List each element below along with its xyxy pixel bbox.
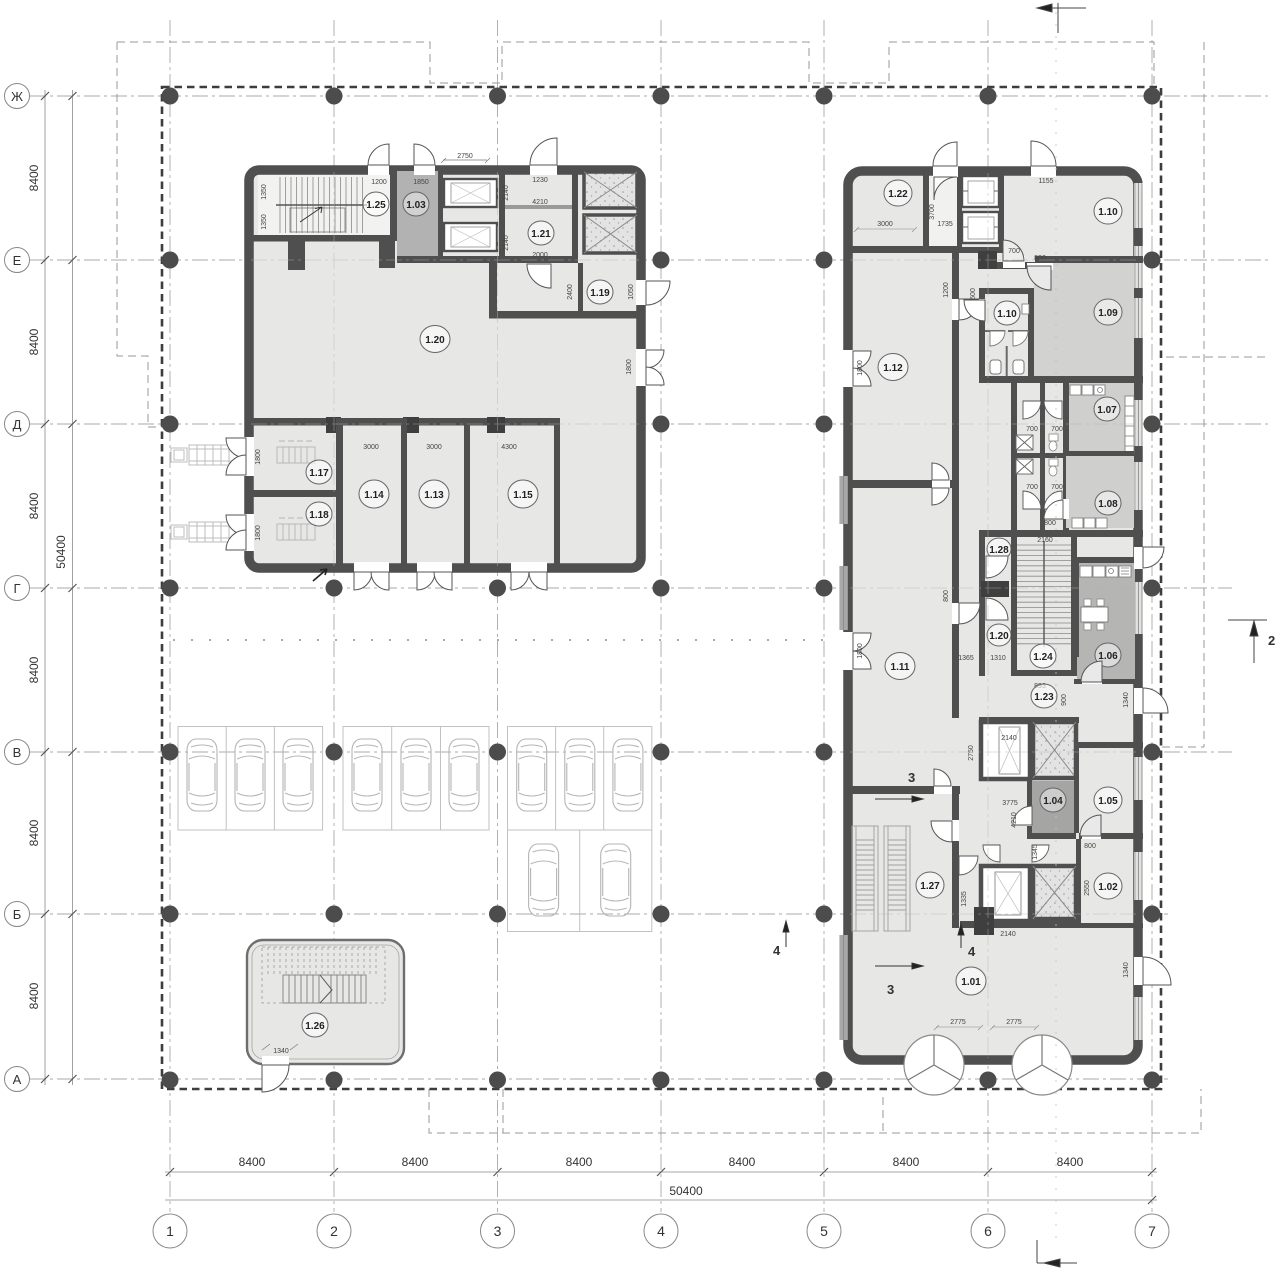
svg-text:8400: 8400 xyxy=(239,1155,266,1169)
svg-text:4: 4 xyxy=(657,1223,665,1239)
svg-text:800: 800 xyxy=(1034,255,1046,262)
svg-text:1.22: 1.22 xyxy=(888,189,908,200)
svg-text:Г: Г xyxy=(13,581,20,596)
svg-text:8400: 8400 xyxy=(27,982,41,1009)
svg-text:8400: 8400 xyxy=(566,1155,593,1169)
svg-text:6: 6 xyxy=(984,1223,992,1239)
svg-text:8400: 8400 xyxy=(27,819,41,846)
svg-text:Ж: Ж xyxy=(11,89,23,104)
svg-text:1200: 1200 xyxy=(943,282,950,298)
svg-text:1350: 1350 xyxy=(261,184,268,200)
svg-text:3000: 3000 xyxy=(363,444,379,451)
svg-text:1.20: 1.20 xyxy=(989,631,1009,642)
svg-text:700: 700 xyxy=(1051,484,1063,491)
svg-text:4210: 4210 xyxy=(532,199,548,206)
svg-text:2750: 2750 xyxy=(968,745,975,761)
svg-text:1.04: 1.04 xyxy=(1043,796,1063,807)
svg-text:2400: 2400 xyxy=(567,284,574,300)
svg-text:2140: 2140 xyxy=(503,235,510,251)
svg-text:2: 2 xyxy=(330,1223,338,1239)
svg-text:1.10: 1.10 xyxy=(997,309,1017,320)
svg-text:1.28: 1.28 xyxy=(989,545,1009,556)
svg-text:1.11: 1.11 xyxy=(891,662,910,673)
svg-text:1.14: 1.14 xyxy=(364,490,384,501)
svg-text:В: В xyxy=(13,745,22,760)
svg-text:1310: 1310 xyxy=(990,655,1006,662)
svg-text:8400: 8400 xyxy=(27,164,41,191)
svg-text:8400: 8400 xyxy=(27,328,41,355)
svg-text:1.06: 1.06 xyxy=(1098,651,1118,662)
svg-text:1.03: 1.03 xyxy=(406,200,426,211)
svg-text:1350: 1350 xyxy=(261,214,268,230)
svg-text:1.18: 1.18 xyxy=(309,510,329,521)
svg-text:2140: 2140 xyxy=(1001,735,1017,742)
svg-text:1345: 1345 xyxy=(1032,844,1039,860)
svg-text:50400: 50400 xyxy=(54,535,68,569)
svg-text:700: 700 xyxy=(1008,248,1020,255)
svg-text:1050: 1050 xyxy=(628,284,635,300)
svg-text:3: 3 xyxy=(908,770,915,785)
svg-text:1.09: 1.09 xyxy=(1098,308,1118,319)
svg-text:2140: 2140 xyxy=(1000,931,1016,938)
svg-text:5: 5 xyxy=(820,1223,828,1239)
svg-text:1.02: 1.02 xyxy=(1098,882,1118,893)
svg-text:1.17: 1.17 xyxy=(309,468,329,479)
svg-text:1365: 1365 xyxy=(958,655,974,662)
svg-text:1335: 1335 xyxy=(961,891,968,907)
svg-text:1340: 1340 xyxy=(1123,692,1130,708)
svg-text:1340: 1340 xyxy=(273,1048,289,1055)
svg-text:1.12: 1.12 xyxy=(883,363,903,374)
svg-text:1.19: 1.19 xyxy=(590,288,610,299)
svg-text:900: 900 xyxy=(1061,694,1068,706)
svg-text:1.15: 1.15 xyxy=(513,490,533,501)
svg-text:2160: 2160 xyxy=(1037,537,1053,544)
svg-text:2775: 2775 xyxy=(950,1019,966,1026)
svg-text:1800: 1800 xyxy=(255,449,262,465)
svg-text:1.05: 1.05 xyxy=(1098,796,1118,807)
svg-text:700: 700 xyxy=(1051,426,1063,433)
svg-text:1: 1 xyxy=(166,1223,174,1239)
svg-text:4: 4 xyxy=(968,944,976,959)
svg-text:3: 3 xyxy=(494,1223,502,1239)
svg-text:Д: Д xyxy=(13,417,22,432)
svg-text:1.23: 1.23 xyxy=(1034,692,1054,703)
svg-text:1850: 1850 xyxy=(413,179,429,186)
svg-text:3000: 3000 xyxy=(426,444,442,451)
svg-text:3775: 3775 xyxy=(1002,800,1018,807)
svg-text:1800: 1800 xyxy=(857,643,864,659)
svg-text:1.24: 1.24 xyxy=(1033,652,1053,663)
svg-text:2775: 2775 xyxy=(1006,1019,1022,1026)
svg-text:1.20: 1.20 xyxy=(425,335,445,346)
svg-text:1340: 1340 xyxy=(1123,962,1130,978)
svg-text:1800: 1800 xyxy=(626,359,633,375)
svg-text:4210: 4210 xyxy=(1011,812,1018,828)
svg-text:700: 700 xyxy=(1026,426,1038,433)
svg-text:700: 700 xyxy=(1026,484,1038,491)
svg-text:2550: 2550 xyxy=(1084,880,1091,896)
svg-text:800: 800 xyxy=(943,590,950,602)
svg-text:1.01: 1.01 xyxy=(961,977,981,988)
svg-text:4: 4 xyxy=(773,943,781,958)
svg-text:8400: 8400 xyxy=(27,656,41,683)
svg-text:1.07: 1.07 xyxy=(1097,405,1117,416)
svg-text:1.13: 1.13 xyxy=(424,490,444,501)
svg-text:1800: 1800 xyxy=(255,525,262,541)
svg-text:1800: 1800 xyxy=(857,360,864,376)
svg-text:2000: 2000 xyxy=(532,252,548,259)
svg-text:1155: 1155 xyxy=(1038,178,1053,185)
svg-text:1.21: 1.21 xyxy=(531,229,551,240)
svg-text:Б: Б xyxy=(13,907,22,922)
svg-text:8400: 8400 xyxy=(729,1155,756,1169)
svg-text:1200: 1200 xyxy=(371,179,387,186)
svg-text:7: 7 xyxy=(1148,1223,1156,1239)
svg-text:1.08: 1.08 xyxy=(1098,499,1118,510)
svg-text:8400: 8400 xyxy=(1057,1155,1084,1169)
svg-text:8400: 8400 xyxy=(893,1155,920,1169)
svg-text:1.10: 1.10 xyxy=(1098,207,1118,218)
svg-text:2750: 2750 xyxy=(457,153,473,160)
svg-text:800: 800 xyxy=(1044,520,1056,527)
svg-text:600: 600 xyxy=(970,288,977,300)
svg-text:1230: 1230 xyxy=(532,177,548,184)
svg-text:3000: 3000 xyxy=(877,221,893,228)
svg-text:50400: 50400 xyxy=(669,1184,703,1198)
svg-text:2: 2 xyxy=(1268,633,1275,648)
svg-text:8400: 8400 xyxy=(402,1155,429,1169)
svg-text:8400: 8400 xyxy=(27,492,41,519)
svg-text:Е: Е xyxy=(13,253,22,268)
svg-text:1.25: 1.25 xyxy=(366,200,386,211)
svg-text:800: 800 xyxy=(1084,843,1096,850)
svg-text:3: 3 xyxy=(887,982,894,997)
svg-text:3700: 3700 xyxy=(929,204,936,220)
svg-text:1735: 1735 xyxy=(937,221,953,228)
svg-text:1.26: 1.26 xyxy=(305,1021,325,1032)
svg-text:А: А xyxy=(13,1072,22,1087)
svg-text:4300: 4300 xyxy=(501,444,517,451)
svg-text:2140: 2140 xyxy=(503,185,510,201)
svg-text:1.27: 1.27 xyxy=(920,881,940,892)
